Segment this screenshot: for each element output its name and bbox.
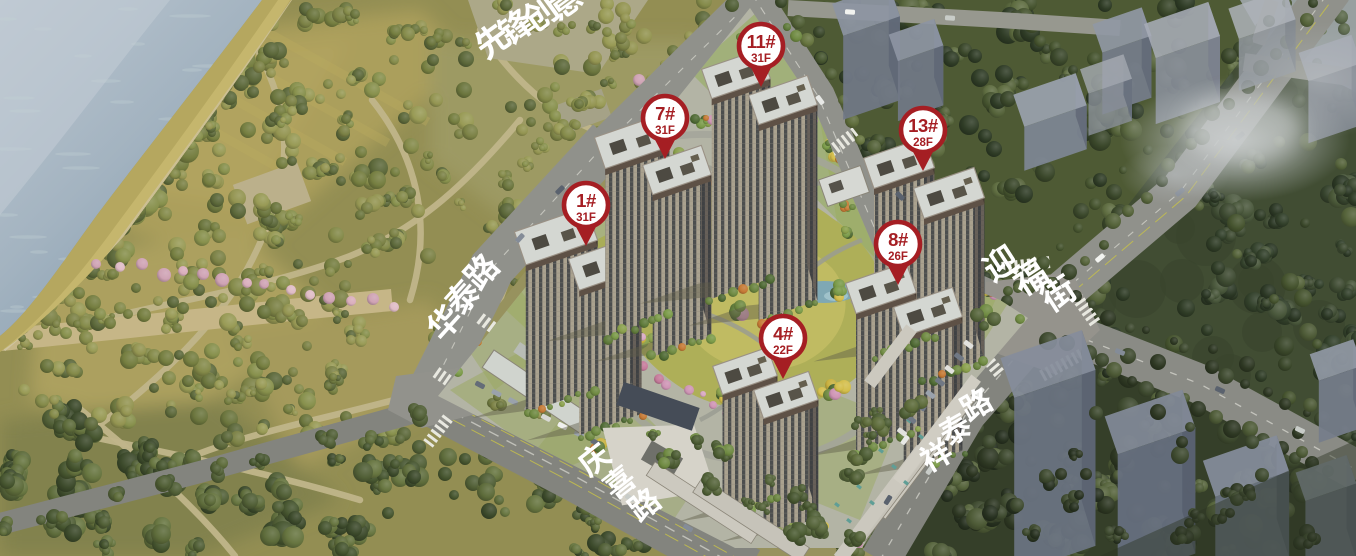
svg-text:11#: 11# xyxy=(747,31,776,52)
svg-text:1#: 1# xyxy=(576,190,596,211)
svg-text:13#: 13# xyxy=(908,115,938,136)
svg-text:31F: 31F xyxy=(751,53,771,65)
svg-text:8#: 8# xyxy=(888,229,908,250)
svg-text:22F: 22F xyxy=(773,345,793,357)
svg-text:31F: 31F xyxy=(576,212,596,224)
svg-text:4#: 4# xyxy=(773,323,793,344)
svg-text:7#: 7# xyxy=(655,103,675,124)
svg-text:31F: 31F xyxy=(655,125,675,137)
svg-text:28F: 28F xyxy=(913,137,933,149)
svg-text:26F: 26F xyxy=(888,251,908,263)
